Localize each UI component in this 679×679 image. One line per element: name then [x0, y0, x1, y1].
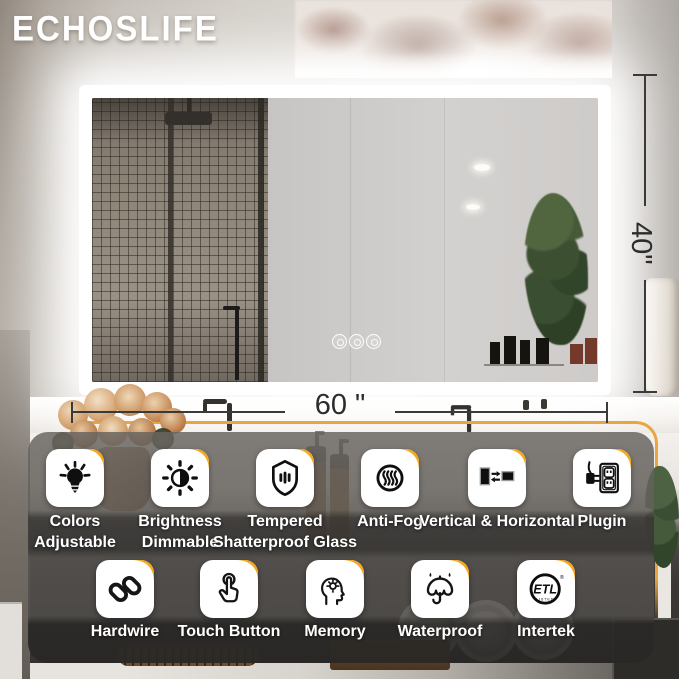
- height-dimension-tick-bottom: [633, 391, 657, 393]
- feature-tile-plugin: [573, 449, 631, 507]
- red-bottle-reflection: [585, 338, 597, 364]
- led-mirror: [79, 85, 611, 395]
- width-dimension-line: [73, 411, 285, 413]
- cabinet-seam: [444, 98, 445, 382]
- shower-glass-frame: [258, 98, 264, 382]
- feature-label: Plugin: [512, 511, 679, 532]
- tempered-glass-shield-icon: [265, 458, 305, 498]
- feature-tile-memory: [306, 560, 364, 618]
- feature-tile-vertical-horizontal: [468, 449, 526, 507]
- feature-tile-hardwire: [96, 560, 154, 618]
- ceiling-light-reflection: [466, 204, 480, 210]
- feature-tile-intertek: ETL LISTED ®: [517, 560, 575, 618]
- anti-fog-steam-icon: [370, 458, 410, 498]
- feature-tile-waterproof: [411, 560, 469, 618]
- shower-tile-reflection: [92, 98, 268, 382]
- umbrella-icon: [420, 569, 460, 609]
- shelf-bottles-reflection: [488, 334, 556, 366]
- chain-link-icon: [105, 569, 145, 609]
- feature-tile-colors-adjustable: [46, 449, 104, 507]
- ceiling-light-reflection: [474, 164, 490, 171]
- etl-listed-icon: ETL LISTED ®: [526, 569, 566, 609]
- width-dimension-tick-right: [606, 402, 608, 423]
- height-dimension-label: 40": [626, 208, 655, 278]
- brightness-icon: [160, 458, 200, 498]
- etl-text: ETL: [533, 583, 557, 597]
- hanging-towel: [646, 278, 679, 396]
- width-dimension-line: [395, 411, 607, 413]
- feature-tile-anti-fog: [361, 449, 419, 507]
- height-dimension-line: [644, 280, 646, 392]
- mirror-touch-button: [366, 334, 381, 349]
- product-image: 40" 60 " ECHOSLIFE ColorsAdjustable: [0, 0, 679, 679]
- registered-mark: ®: [560, 574, 564, 581]
- height-dimension-line: [644, 76, 646, 206]
- width-dimension-label: 60 ": [280, 391, 400, 420]
- left-tile-wall: [0, 602, 22, 679]
- mirror-touch-button: [332, 334, 347, 349]
- mirror-touch-button: [349, 334, 364, 349]
- wall-hook: [523, 400, 529, 410]
- brand-logo: ECHOSLIFE: [12, 8, 219, 49]
- bulb-icon: [55, 458, 95, 498]
- feature-label: Intertek: [456, 621, 636, 642]
- etl-listed-text: LISTED: [536, 597, 554, 601]
- shower-faucet: [235, 308, 239, 380]
- touch-finger-icon: [209, 569, 249, 609]
- orientation-icon: [477, 458, 517, 498]
- shower-faucet-spout: [223, 306, 240, 310]
- plug-outlet-icon: [582, 458, 622, 498]
- feature-tile-brightness-dimmable: [151, 449, 209, 507]
- feature-tile-tempered-glass: [256, 449, 314, 507]
- shower-arm: [187, 98, 191, 113]
- feature-tile-touch-button: [200, 560, 258, 618]
- red-bottle-reflection: [570, 344, 583, 364]
- wall-hook: [541, 399, 547, 409]
- memory-head-icon: [315, 569, 355, 609]
- shelf-reflection: [484, 364, 564, 366]
- shower-glass-frame: [168, 98, 173, 382]
- rain-shower-head: [165, 112, 212, 125]
